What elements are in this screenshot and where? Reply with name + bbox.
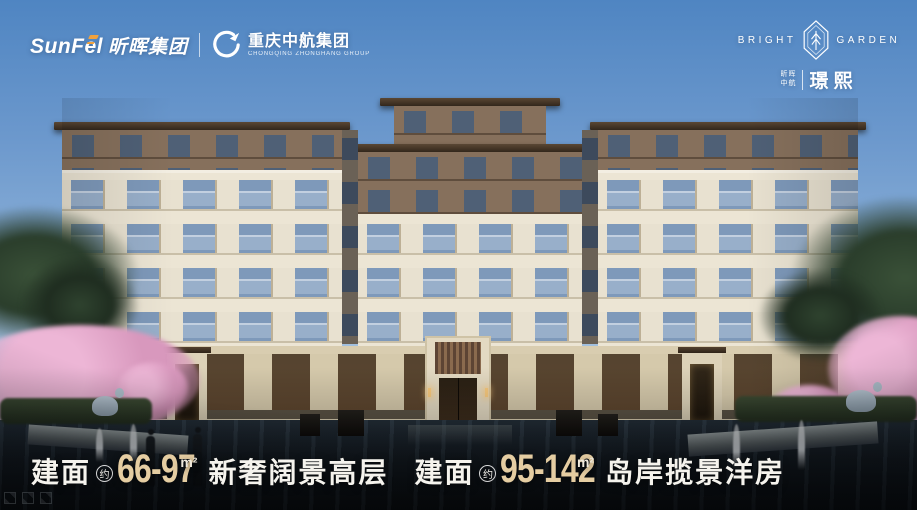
poster: SunFel 昕晖集团 重庆中航集团 CHONGQING ZHONGHANG G… — [0, 0, 917, 510]
penthouse-roof — [380, 98, 560, 106]
watermark-glyph — [40, 492, 52, 504]
main-entrance — [425, 336, 491, 423]
partner-logo: 重庆中航集团 CHONGQING ZHONGHANG GROUP — [211, 30, 370, 60]
watermark-glyph — [4, 492, 16, 504]
partner-en-text: CHONGQING ZHONGHANG GROUP — [248, 51, 370, 58]
tagline-group-flats: 建面 约 95-142 m² 岛岸揽景洋房 — [414, 447, 785, 492]
partner-logo-text: 重庆中航集团 CHONGQING ZHONGHANG GROUP — [248, 33, 370, 57]
area-unit: m² — [180, 454, 197, 470]
tagline: 建面 约 66-97 m² 新奢阔景高层 建面 约 95-142 m² 岛岸揽景… — [31, 447, 785, 492]
tagline-group-highrise: 建面 约 66-97 m² 新奢阔景高层 — [31, 447, 388, 492]
approx-circle-icon: 约 — [96, 465, 113, 482]
project-name: 璟熙 — [809, 66, 857, 93]
right-tower-facade — [598, 170, 858, 349]
project-en-right: GARDEN — [836, 35, 900, 46]
center-upper-band — [358, 152, 582, 214]
center-tower — [358, 98, 582, 346]
header-logos: SunFel 昕晖集团 重庆中航集团 CHONGQING ZHONGHANG G… — [30, 30, 370, 60]
tower-joint-left — [342, 130, 358, 344]
tagline-prefix: 建面 — [31, 451, 91, 491]
left-tower-facade — [62, 170, 342, 349]
right-tower-roof — [590, 122, 866, 130]
entrance-sconce-left — [428, 388, 431, 397]
side-entrance-right — [682, 352, 722, 422]
side-entrance-left — [167, 352, 207, 422]
right-tower — [598, 98, 858, 346]
watermark-glyph — [22, 492, 34, 504]
logo-divider — [199, 33, 200, 57]
entrance-sconce-right — [485, 388, 488, 397]
left-tower-upper-floors — [62, 130, 342, 170]
watermark — [4, 492, 52, 504]
product-description: 岛岸揽景洋房 — [605, 451, 785, 491]
sunfel-cn-text: 昕晖集团 — [108, 32, 188, 59]
center-mid-roof — [350, 144, 590, 152]
right-tower-upper-floors — [598, 130, 858, 170]
garden-emblem-icon — [803, 20, 829, 60]
project-brand-small: 昕晖 中航 — [780, 71, 796, 87]
approx-circle-icon: 约 — [479, 465, 496, 482]
entrance-lattice — [435, 342, 481, 374]
project-name-divider — [802, 70, 803, 90]
project-logo-english-row: BRIGHT GARDEN — [738, 20, 901, 60]
project-logo: BRIGHT GARDEN 昕晖 中航 璟熙 — [735, 20, 903, 93]
tower-joint-right — [582, 130, 598, 344]
project-en-left: BRIGHT — [738, 35, 797, 46]
sunfel-logo: SunFel 昕晖集团 — [30, 32, 188, 59]
sunfel-accent-mark — [88, 35, 99, 39]
building-render — [62, 98, 858, 425]
product-description: 新奢阔景高层 — [208, 451, 388, 491]
tagline-prefix: 建面 — [414, 451, 474, 491]
project-brand-top: 昕晖 — [780, 71, 796, 79]
penthouse-wall — [394, 106, 546, 146]
area-unit: m² — [577, 454, 594, 470]
left-tower — [62, 98, 342, 346]
partner-cn-text: 重庆中航集团 — [248, 33, 370, 51]
left-tower-roof — [54, 122, 350, 130]
project-brand-bottom: 中航 — [780, 80, 796, 88]
entrance-door-seam — [458, 378, 459, 421]
project-logo-name-row: 昕晖 中航 璟熙 — [780, 66, 857, 93]
partner-swirl-icon — [211, 30, 241, 60]
